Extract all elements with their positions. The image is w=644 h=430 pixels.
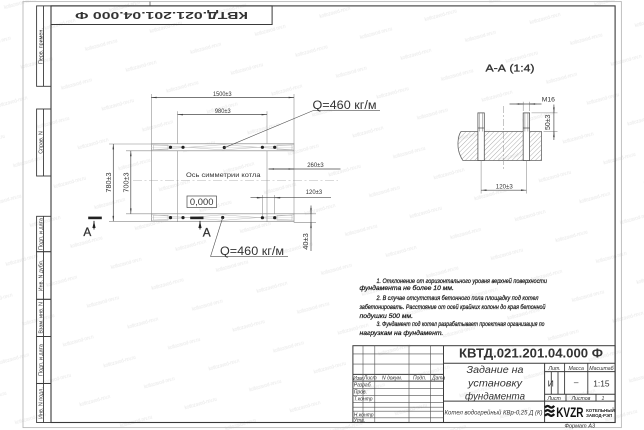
svg-text:780±3: 780±3 xyxy=(104,173,113,193)
svg-text:M16: M16 xyxy=(542,97,555,104)
svg-text:фундамента не более 10 мм.: фундамента не более 10 мм. xyxy=(360,284,455,292)
svg-text:Инв. N дубл.: Инв. N дубл. xyxy=(38,260,44,292)
svg-text:980±3: 980±3 xyxy=(215,108,231,115)
svg-text:А: А xyxy=(83,225,91,239)
svg-text:Разраб.: Разраб. xyxy=(354,383,372,389)
svg-text:Задание на: Задание на xyxy=(467,364,524,376)
svg-text:КВТД.021.201.04.000 Ф: КВТД.021.201.04.000 Ф xyxy=(74,9,248,20)
svg-text:Листов: Листов xyxy=(571,396,591,402)
svg-text:Т.контр: Т.контр xyxy=(354,397,373,403)
svg-text:Пров.: Пров. xyxy=(354,390,367,396)
svg-text:Перв. примен.: Перв. примен. xyxy=(38,28,44,64)
svg-text:1500±3: 1500±3 xyxy=(213,91,232,98)
svg-text:Дата: Дата xyxy=(431,376,445,382)
svg-text:Справ. N: Справ. N xyxy=(38,131,44,154)
svg-text:KVZR: KVZR xyxy=(556,405,583,420)
svg-text:КВТД.021.201.04.000 Ф: КВТД.021.201.04.000 Ф xyxy=(459,347,603,361)
svg-text:Взам. инв. N: Взам. инв. N xyxy=(38,302,44,334)
svg-text:Ось симметрии котла: Ось симметрии котла xyxy=(186,172,261,179)
svg-text:ЗАВОД-РЭП: ЗАВОД-РЭП xyxy=(586,413,612,418)
svg-text:Формат А3: Формат А3 xyxy=(564,424,595,430)
svg-text:Подп. и дата: Подп. и дата xyxy=(38,344,44,376)
svg-text:N докум.: N докум. xyxy=(382,376,402,382)
svg-text:Подп.: Подп. xyxy=(413,376,426,382)
svg-text:А-А (1:4): А-А (1:4) xyxy=(486,63,535,75)
svg-text:фундамента: фундамента xyxy=(465,390,525,402)
svg-text:Масштаб: Масштаб xyxy=(589,366,614,372)
svg-text:1. Отклонение от горизонтально: 1. Отклонение от горизонтального уровня … xyxy=(377,277,548,285)
svg-text:установку: установку xyxy=(467,377,523,389)
svg-text:40±3: 40±3 xyxy=(301,233,310,250)
svg-text:подушки 500 мм.: подушки 500 мм. xyxy=(360,312,414,320)
svg-text:забетонировать. Расстояние от: забетонировать. Расстояние от осей крайн… xyxy=(359,303,546,311)
svg-text:700±3: 700±3 xyxy=(121,173,130,193)
svg-text:Изм.: Изм. xyxy=(353,376,364,382)
svg-text:А: А xyxy=(203,225,211,239)
svg-text:–: – xyxy=(574,378,579,387)
svg-text:260±3: 260±3 xyxy=(307,162,324,169)
svg-text:3. Фундамент под котел разраба: 3. Фундамент под котел разрабатывает про… xyxy=(377,320,545,328)
svg-text:2. В случае отсутствия бетонно: 2. В случае отсутствия бетонного пола пл… xyxy=(376,294,539,302)
svg-text:1:15: 1:15 xyxy=(593,378,610,388)
svg-text:1: 1 xyxy=(602,396,605,402)
svg-text:Утв.: Утв. xyxy=(354,418,365,424)
svg-text:Q=460 кг/м: Q=460 кг/м xyxy=(220,246,284,258)
svg-text:Лит.: Лит. xyxy=(548,366,561,372)
svg-text:Лист: Лист xyxy=(547,396,562,402)
svg-text:120±3: 120±3 xyxy=(306,189,323,196)
svg-text:Подп. и дата: Подп. и дата xyxy=(38,218,44,250)
svg-text:50±3: 50±3 xyxy=(543,115,552,131)
svg-text:120±3: 120±3 xyxy=(496,184,513,191)
svg-text:нагрузкам на фундамент.: нагрузкам на фундамент. xyxy=(360,329,444,337)
svg-text:Лист: Лист xyxy=(363,376,377,382)
svg-text:Котел водогрейный КВр-0,25 Д (: Котел водогрейный КВр-0,25 Д (К) xyxy=(445,410,543,417)
svg-text:Q=460 кг/м: Q=460 кг/м xyxy=(313,100,377,112)
svg-text:Инв. N подл.: Инв. N подл. xyxy=(38,387,44,419)
svg-text:И: И xyxy=(548,378,554,388)
svg-text:Масса: Масса xyxy=(569,366,584,372)
svg-text:0,000: 0,000 xyxy=(190,197,214,207)
